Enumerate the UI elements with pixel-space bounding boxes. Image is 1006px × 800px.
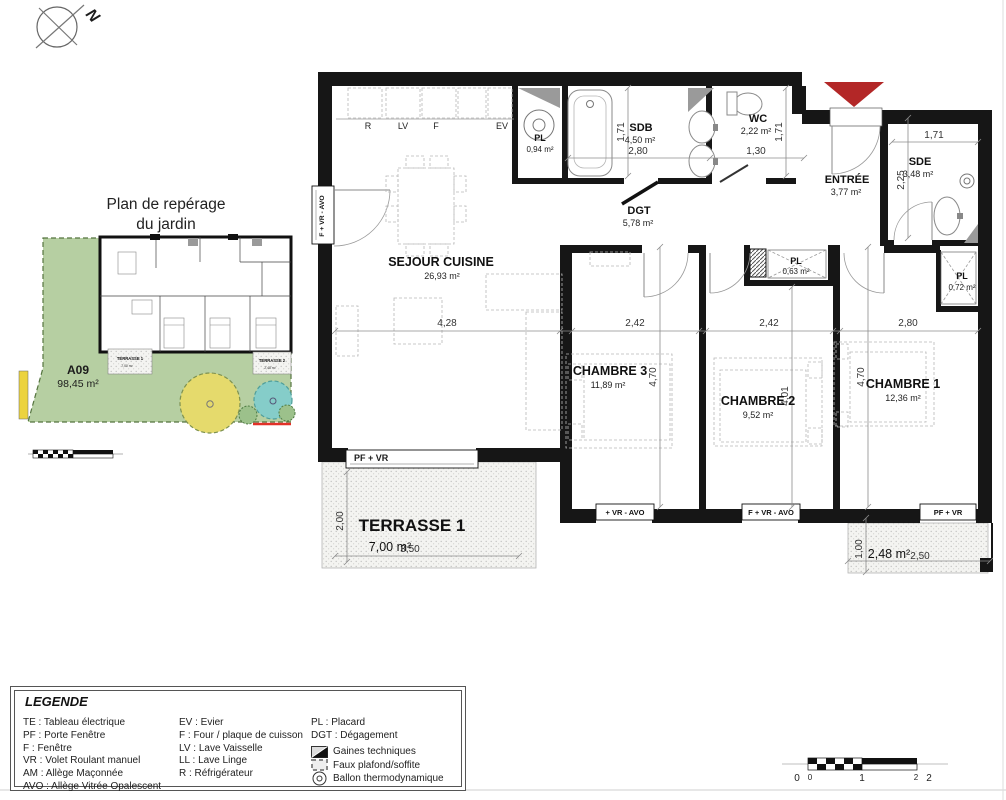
room-area-sde: 3,48 m² <box>903 169 934 179</box>
legend-symbol-label: Ballon thermodynamique <box>333 773 444 784</box>
window-label-chambre1: PF + VR <box>934 508 963 517</box>
dim-terrasse1-height: 2,00 <box>335 511 346 531</box>
room-label-pl-ch2: PL <box>790 256 802 266</box>
window-label-chambre2: F + VR - AVO <box>748 508 794 517</box>
room-area-chambre2: 9,52 m² <box>743 410 774 420</box>
dim-sde-width: 1,71 <box>924 130 944 141</box>
sink-label: EV <box>496 121 508 131</box>
room-label-chambre3: CHAMBRE 3 <box>573 364 647 378</box>
room-area-terrasse1: 7,00 m² <box>369 540 411 554</box>
mini-plan-title-line1: Plan de repérage <box>107 196 226 213</box>
scale-bar: 0 0 1 2 2 <box>782 758 948 784</box>
legend-item: R : Réfrigérateur <box>179 768 303 781</box>
dim-wc-height: 1,71 <box>774 122 785 142</box>
mini-garden-plan: Plan de repérage du jardin T <box>19 196 295 458</box>
legend-symbol-label: Faux plafond/soffite <box>333 760 420 771</box>
room-label-chambre2: CHAMBRE 2 <box>721 394 795 408</box>
room-area-entree: 3,77 m² <box>831 187 862 197</box>
room-label-chambre1: CHAMBRE 1 <box>866 377 940 391</box>
dishwasher-label: LV <box>398 121 408 131</box>
dim-sejour-width: 4,28 <box>437 318 457 329</box>
dim-sdb-width: 2,80 <box>628 146 648 157</box>
appliance-labels: R LV F EV <box>365 121 508 131</box>
mini-terrasse1-area: 7,00 m² <box>121 364 133 368</box>
room-label-sde: SDE <box>909 156 932 168</box>
room-area-sejour: 26,93 m² <box>424 271 460 281</box>
technical-duct-icon <box>311 746 328 758</box>
mini-terrasse-1: TERRASSE 1 7,00 m² <box>108 349 152 374</box>
room-area-chambre1: 12,36 m² <box>885 393 921 403</box>
room-label-pl-ch1: PL <box>956 271 968 281</box>
room-label-sejour: SEJOUR CUISINE <box>388 255 494 269</box>
main-floor-plan: F + VR - AVO PF + VR + VR - AVO F + VR -… <box>312 72 993 575</box>
room-area-pl-ch2: 0,63 m² <box>782 267 809 276</box>
mini-plan-title-line2: du jardin <box>136 216 195 233</box>
legend-symbols: Gaines techniques Faux plafond/soffite B… <box>311 745 444 786</box>
window-label-terrasse1: PF + VR <box>354 453 389 463</box>
mini-scale-bar <box>28 450 123 458</box>
legend-title: LEGENDE <box>25 694 88 709</box>
tree-icon <box>180 373 240 433</box>
compass-rose: N <box>36 5 103 48</box>
legend-item: EV : Evier <box>179 717 303 730</box>
entrance-arrow-icon <box>824 82 884 107</box>
legend-item: PL : Placard <box>311 717 398 730</box>
windows: F + VR - AVO PF + VR + VR - AVO F + VR -… <box>312 108 976 520</box>
garden-yellow-strip <box>19 371 28 419</box>
room-label-terrasse1: TERRASSE 1 <box>359 516 466 535</box>
oven-label: F <box>433 121 439 131</box>
scale-label-0: 0 <box>794 773 800 784</box>
legend-item: AM : Allège Maçonnée <box>23 768 161 781</box>
mini-apartment <box>100 234 291 352</box>
window-label-sejour-side: F + VR - AVO <box>319 195 326 236</box>
legend-column-3: PL : Placard DGT : Dégagement <box>311 717 398 743</box>
legend-column-2: EV : Evier F : Four / plaque de cuisson … <box>179 717 303 781</box>
fridge-label: R <box>365 121 372 131</box>
dim-terrasse2-height: 1,00 <box>854 539 865 559</box>
legend-item: AVO : Allège Vitrée Opalescent <box>23 781 161 794</box>
legend-symbol-label: Gaines techniques <box>333 746 416 757</box>
window-label-chambre3: + VR - AVO <box>606 508 645 517</box>
legend-item: TE : Tableau électrique <box>23 717 161 730</box>
legend-box: LEGENDE TE : Tableau électrique PF : Por… <box>10 686 466 791</box>
lot-area-label: 98,45 m² <box>57 378 99 390</box>
room-area-dgt: 5,78 m² <box>623 218 654 228</box>
dim-terrasse2-width: 2,50 <box>910 551 930 562</box>
room-area-pl-ch1: 0,72 m² <box>948 283 975 292</box>
dim-chambre2-width: 2,42 <box>759 318 779 329</box>
shrub-icon <box>239 406 257 424</box>
legend-item: F : Four / plaque de cuisson <box>179 730 303 743</box>
false-ceiling-icon <box>311 759 328 771</box>
mini-terrasse-2: TERRASSE 2 2,48 m² <box>253 352 291 374</box>
legend-item: LL : Lave Linge <box>179 755 303 768</box>
mini-terrasse1-label: TERRASSE 1 <box>117 356 144 361</box>
dim-wc-width: 1,30 <box>746 146 766 157</box>
room-area-terrasse2: 2,48 m² <box>868 547 910 561</box>
legend-column-1: TE : Tableau électrique PF : Porte Fenêt… <box>23 717 161 794</box>
legend-item: PF : Porte Fenêtre <box>23 730 161 743</box>
legend-item: VR : Volet Roulant manuel <box>23 755 161 768</box>
scale-label-2a: 2 <box>914 773 919 782</box>
room-area-pl-cuisine: 0,94 m² <box>526 145 553 154</box>
scale-label-1: 1 <box>859 773 865 784</box>
legend-item: DGT : Dégagement <box>311 730 398 743</box>
shrub-icon <box>279 405 295 421</box>
floor-plan-drawing: N Plan de repérage du jardin <box>0 0 1006 800</box>
entrance-door-frame <box>830 108 882 126</box>
dim-chambre1-width: 2,80 <box>898 318 918 329</box>
legend-item: LV : Lave Vaisselle <box>179 743 303 756</box>
lot-id-label: A09 <box>67 363 89 377</box>
room-label-pl-cuisine: PL <box>534 133 546 143</box>
dim-chambre3-height: 4,70 <box>648 367 659 387</box>
room-label-sdb: SDB <box>629 122 652 134</box>
room-label-entree: ENTRÉE <box>825 173 870 186</box>
room-area-chambre3: 11,89 m² <box>591 380 626 390</box>
room-label-wc: WC <box>749 113 767 125</box>
terrasse-1-area <box>322 462 536 568</box>
mini-terrasse2-area: 2,48 m² <box>264 366 276 370</box>
room-label-dgt: DGT <box>627 205 651 217</box>
water-heater-legend-icon <box>311 771 328 786</box>
compass-north-label: N <box>82 6 103 26</box>
mini-terrasse2-label: TERRASSE 2 <box>259 358 286 363</box>
room-area-wc: 2,22 m² <box>741 126 772 136</box>
legend-item: F : Fenêtre <box>23 743 161 756</box>
scale-label-0b: 0 <box>808 773 813 782</box>
room-area-sdb: 4,50 m² <box>625 135 656 145</box>
dim-chambre3-width: 2,42 <box>625 318 645 329</box>
scale-label-2b: 2 <box>926 773 932 784</box>
